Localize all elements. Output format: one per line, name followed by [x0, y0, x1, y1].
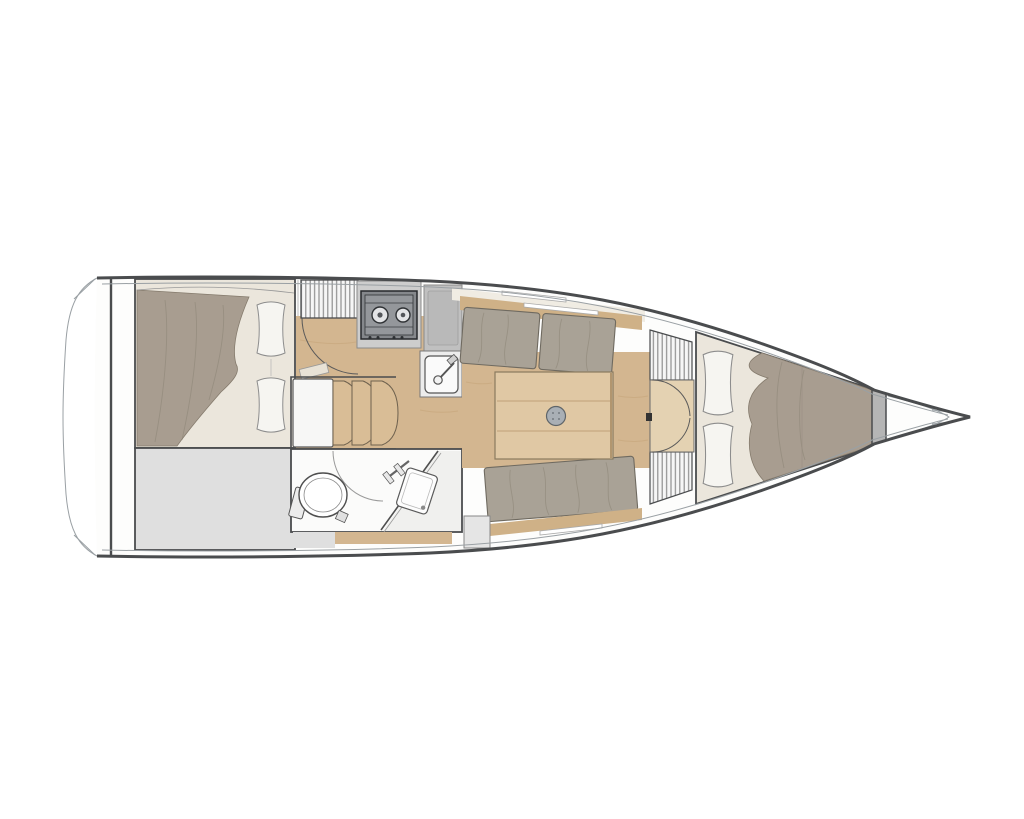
floor-plan-canvas [0, 0, 1024, 819]
door-catch [646, 413, 652, 421]
burner-center [377, 312, 382, 317]
sink [420, 351, 462, 397]
settee-cushion [460, 307, 540, 369]
forward-lockers [646, 330, 694, 504]
aft-cabin [135, 279, 295, 448]
stove-knob [377, 336, 380, 339]
mast-foot-dot [558, 418, 560, 420]
burner-center [401, 313, 406, 318]
settee-cushion [539, 313, 616, 375]
head-aft-strip [293, 532, 335, 548]
forward-pillow [703, 351, 733, 415]
head-threshold [335, 532, 452, 544]
mast-foot-dot [552, 412, 554, 414]
aft-pillow [257, 302, 285, 356]
stove-knob [393, 336, 396, 339]
step-landing [293, 379, 333, 447]
faucet-base [434, 376, 442, 384]
forward-door-floor [650, 380, 694, 452]
forward-pillow [703, 423, 733, 487]
mast-foot-dot [558, 412, 560, 414]
louver-locker-aft [301, 280, 358, 318]
stove-knob [401, 336, 404, 339]
saloon-table [495, 372, 613, 459]
boat-floor-plan [0, 0, 1024, 819]
companionway-steps [291, 377, 398, 449]
aft-pillow [257, 378, 285, 432]
head-compartment [288, 449, 462, 548]
mast-foot [547, 407, 566, 426]
stove [357, 281, 421, 348]
aft-storage-locker [135, 448, 295, 550]
mast-foot-dot [552, 418, 554, 420]
stove-knob [369, 336, 372, 339]
